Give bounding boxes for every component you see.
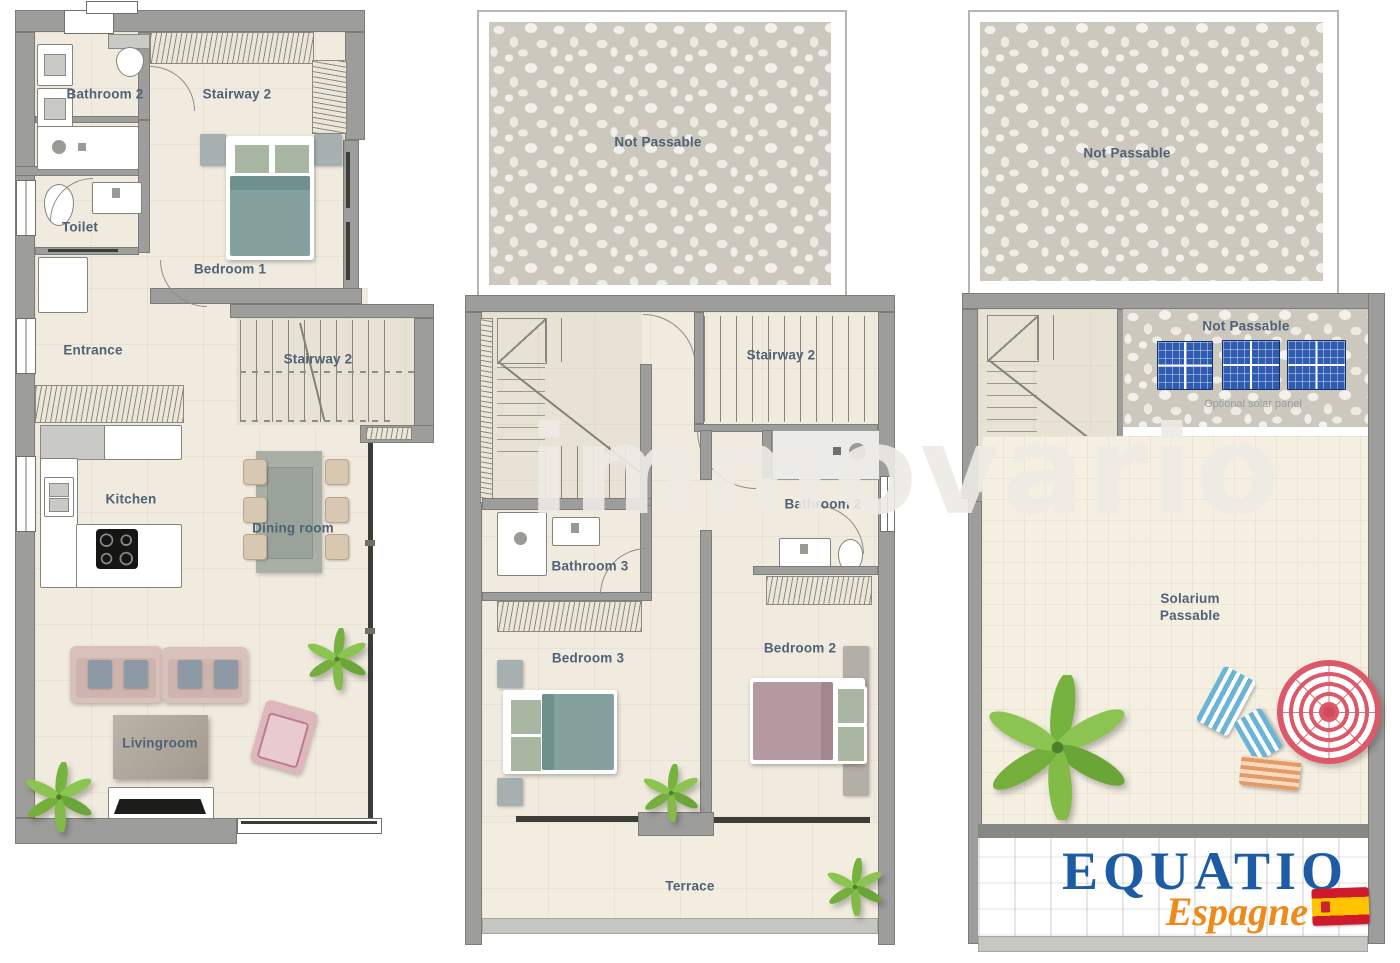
stair-landing (987, 315, 1039, 362)
wall (962, 293, 1385, 309)
solarium-line2: Passable (1160, 608, 1220, 625)
sun-lounger (1239, 755, 1302, 791)
floorplan-canvas: Bathroom 2 Stairway 2 Toilet Bedroom 1 E… (0, 0, 1400, 963)
stair-treads (1037, 315, 1067, 360)
label-not-passable-top: Not Passable (1083, 146, 1170, 163)
solar-panel-icon (1287, 340, 1346, 390)
logo-region: Espagne (1090, 888, 1308, 935)
umbrella-icon (1277, 660, 1381, 764)
solarium-line1: Solarium (1160, 591, 1220, 608)
spain-flag-icon (1311, 887, 1369, 926)
watermark: immovario (528, 400, 1328, 542)
solar-panel-icon (1157, 341, 1213, 390)
wall (1368, 293, 1385, 944)
palm-plant-icon (985, 675, 1130, 820)
label-not-passable-solar: Not Passable (1202, 319, 1289, 336)
room-label-solarium: Solarium Passable (1160, 591, 1220, 625)
solar-panel-icon (1222, 340, 1280, 390)
wall-sill (978, 824, 1368, 838)
wall (978, 936, 1368, 952)
